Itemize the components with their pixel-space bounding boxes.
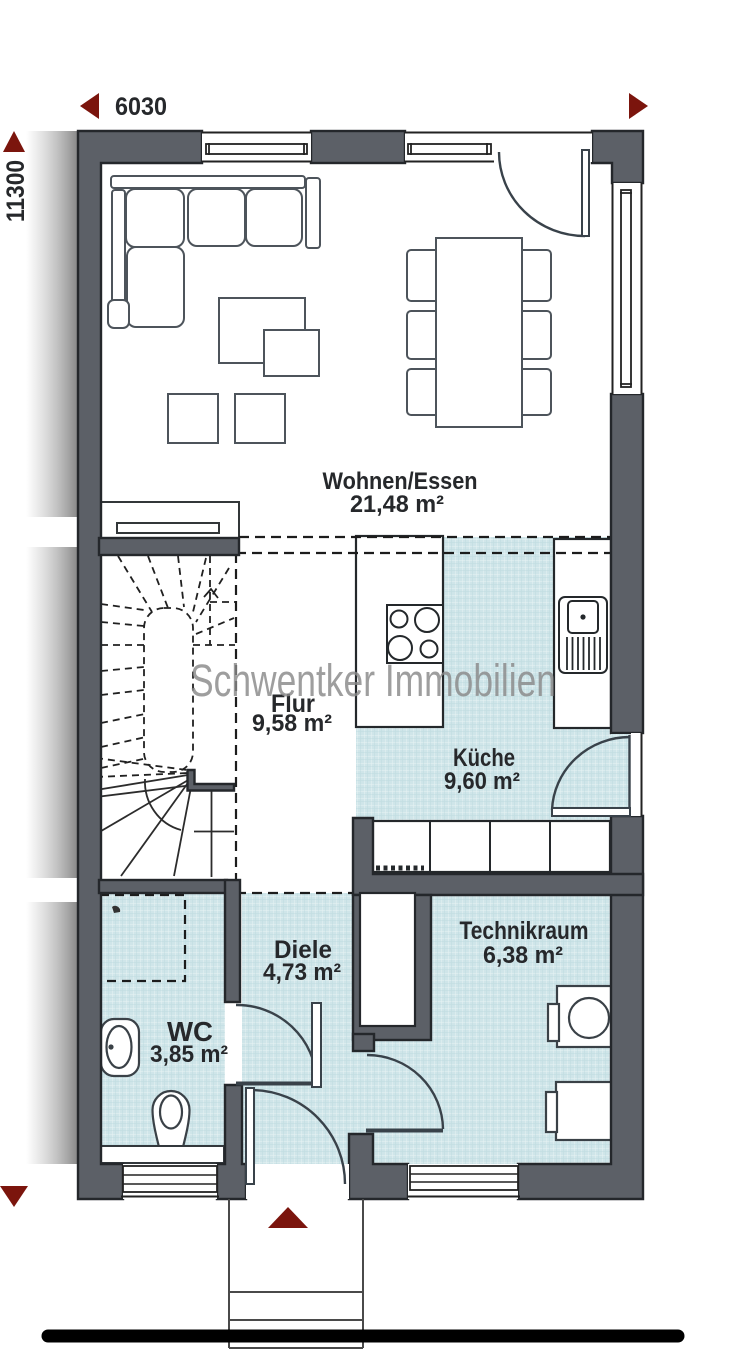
svg-text:6,38 m²: 6,38 m² — [483, 942, 563, 969]
svg-text:3,85 m²: 3,85 m² — [150, 1041, 228, 1068]
svg-text:Technikraum: Technikraum — [460, 917, 589, 945]
svg-text:11300: 11300 — [2, 160, 30, 222]
svg-text:9,58 m²: 9,58 m² — [252, 710, 332, 737]
svg-text:Schwentker Immobilien: Schwentker Immobilien — [190, 655, 556, 706]
svg-text:21,48 m²: 21,48 m² — [350, 491, 444, 518]
svg-text:4,73 m²: 4,73 m² — [263, 959, 341, 986]
svg-text:9,60 m²: 9,60 m² — [444, 768, 520, 795]
svg-text:6030: 6030 — [115, 93, 167, 121]
